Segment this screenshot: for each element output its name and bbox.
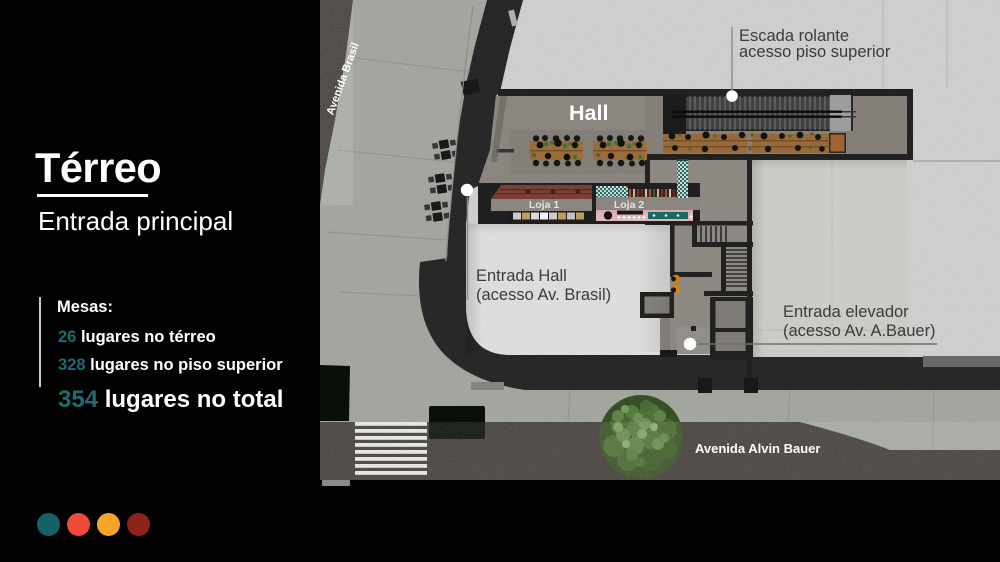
svg-text:Entrada elevador: Entrada elevador <box>783 303 909 321</box>
svg-text:Entrada Hall: Entrada Hall <box>476 267 567 285</box>
svg-text:acesso piso superior: acesso piso superior <box>739 43 891 61</box>
svg-text:(acesso Av. A.Bauer): (acesso Av. A.Bauer) <box>783 322 936 340</box>
svg-text:Avenida Alvin Bauer: Avenida Alvin Bauer <box>695 441 820 456</box>
svg-text:Hall: Hall <box>569 101 608 125</box>
svg-text:(acesso Av. Brasil): (acesso Av. Brasil) <box>476 286 611 304</box>
